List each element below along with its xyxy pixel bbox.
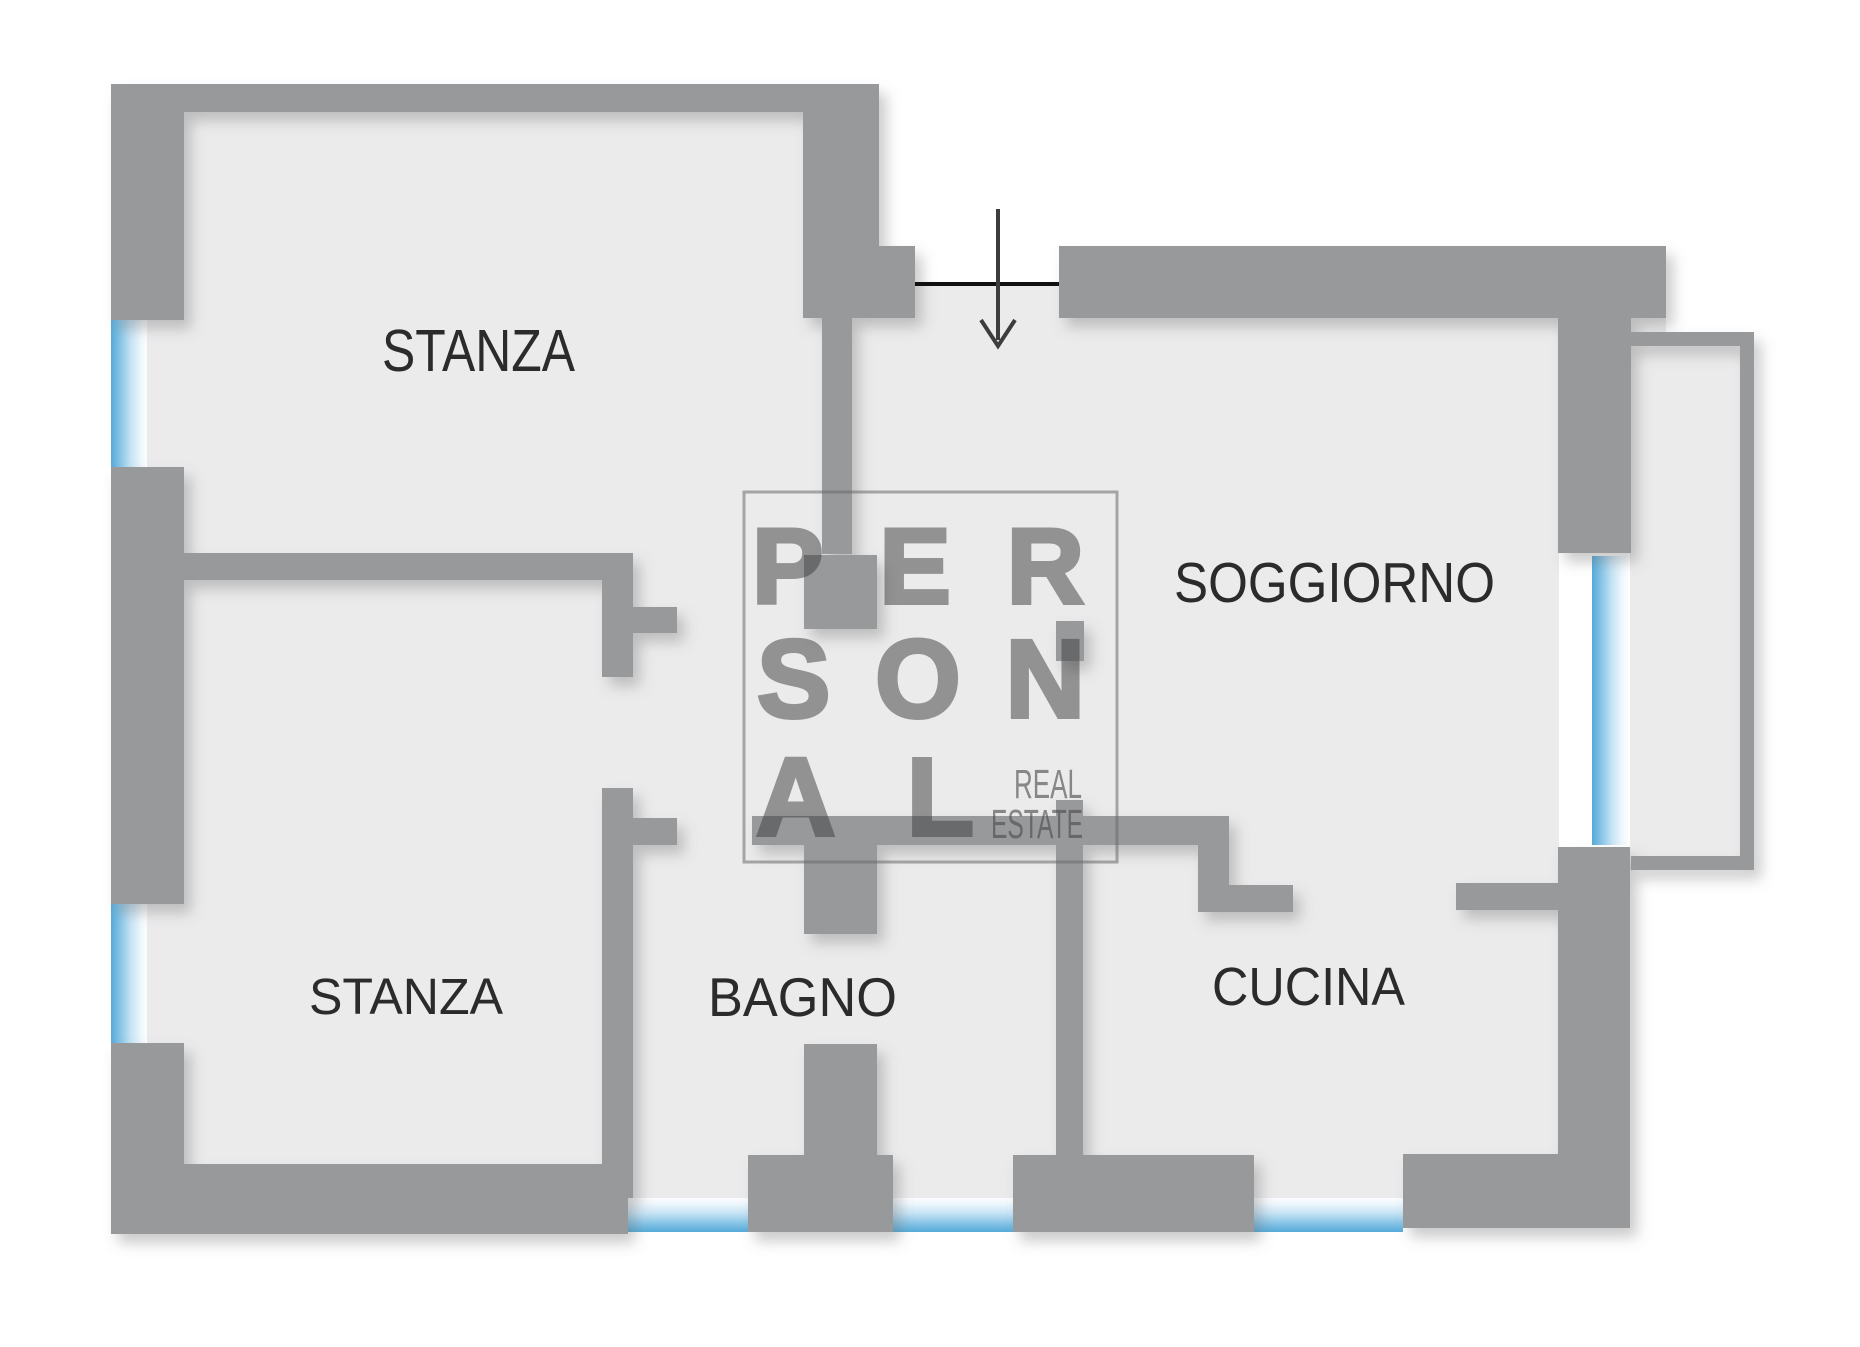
svg-text:PER: PER — [752, 506, 1108, 626]
svg-text:SON: SON — [757, 618, 1109, 741]
svg-text:SOGGIORNO: SOGGIORNO — [1174, 551, 1495, 615]
svg-text:CUCINA: CUCINA — [1212, 957, 1405, 1017]
svg-text:STANZA: STANZA — [309, 968, 503, 1025]
svg-text:ESTATE: ESTATE — [991, 801, 1083, 847]
svg-text:BAGNO: BAGNO — [708, 966, 897, 1028]
svg-text:STANZA: STANZA — [382, 318, 576, 384]
